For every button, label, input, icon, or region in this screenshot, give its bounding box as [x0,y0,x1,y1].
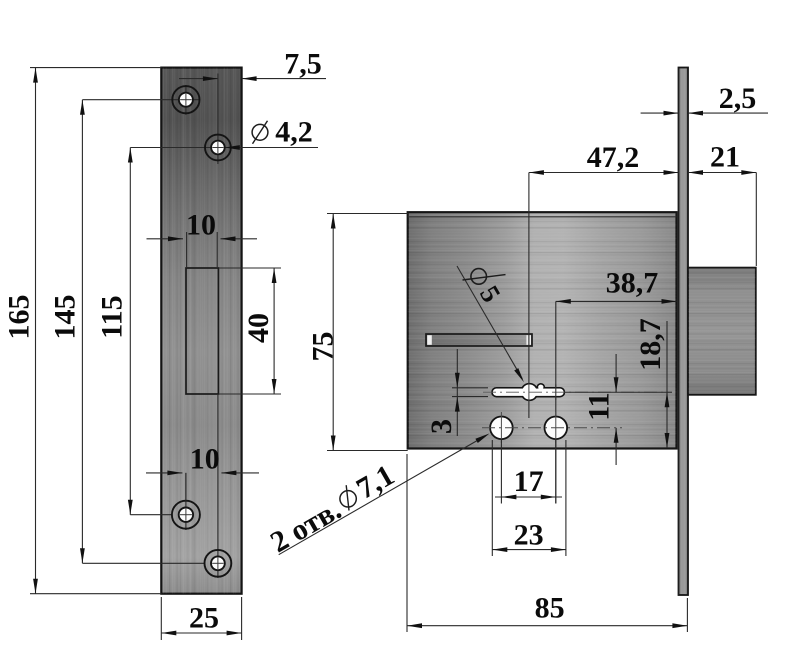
svg-text:2 отв.: 2 отв. [265,493,347,559]
svg-text:38,7: 38,7 [606,267,659,300]
svg-text:10: 10 [186,209,216,242]
svg-text:7,1: 7,1 [351,458,400,505]
svg-text:23: 23 [514,519,544,552]
svg-text:11: 11 [583,392,616,420]
svg-text:85: 85 [535,592,565,625]
svg-text:25: 25 [189,602,219,635]
svg-text:18,7: 18,7 [634,318,667,371]
svg-text:4,2: 4,2 [275,116,313,149]
svg-text:47,2: 47,2 [587,141,640,174]
svg-text:7,5: 7,5 [284,48,322,81]
svg-text:3: 3 [425,419,458,434]
svg-text:75: 75 [307,332,340,362]
svg-text:17: 17 [514,465,544,498]
svg-text:10: 10 [190,443,220,476]
svg-text:145: 145 [49,295,82,340]
svg-text:21: 21 [710,141,740,174]
svg-text:40: 40 [242,313,275,343]
svg-text:2,5: 2,5 [719,82,757,115]
svg-text:115: 115 [96,295,129,338]
svg-text:165: 165 [3,295,36,340]
